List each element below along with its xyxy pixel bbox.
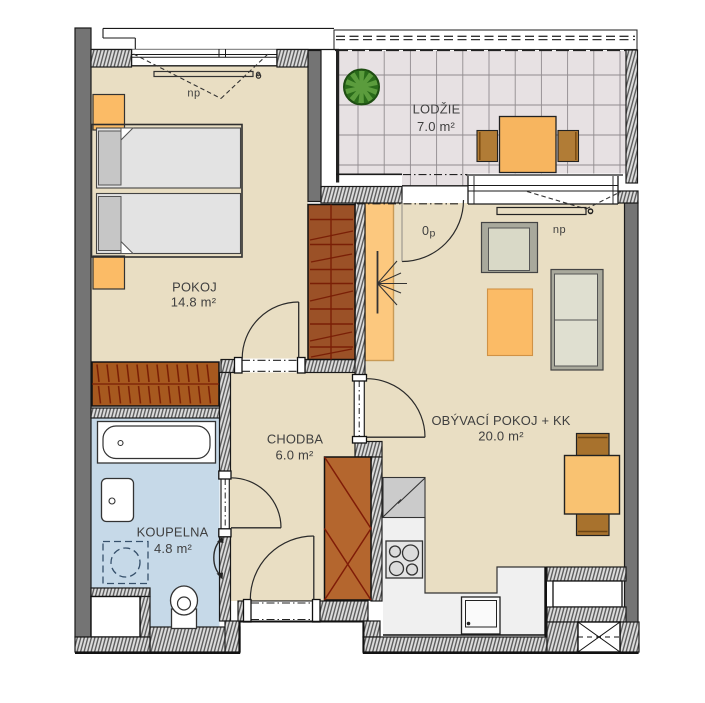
- svg-text:7.0 m²: 7.0 m²: [417, 119, 456, 134]
- svg-text:LODŽIE: LODŽIE: [413, 102, 461, 117]
- svg-text:POKOJ: POKOJ: [172, 280, 217, 295]
- svg-text:4.8 m²: 4.8 m²: [154, 541, 193, 556]
- svg-text:np: np: [553, 224, 566, 236]
- svg-text:KOUPELNA: KOUPELNA: [137, 525, 209, 540]
- svg-text:OBÝVACÍ POKOJ + KK: OBÝVACÍ POKOJ + KK: [431, 413, 570, 428]
- svg-text:np: np: [187, 88, 200, 100]
- svg-text:20.0 m²: 20.0 m²: [478, 429, 524, 444]
- svg-text:CHODBA: CHODBA: [267, 432, 324, 447]
- svg-text:6.0 m²: 6.0 m²: [275, 448, 314, 463]
- svg-text:14.8 m²: 14.8 m²: [171, 295, 217, 310]
